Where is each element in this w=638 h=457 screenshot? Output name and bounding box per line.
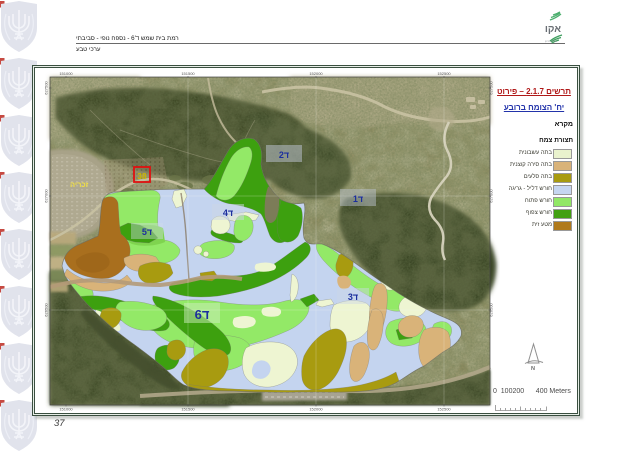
- svg-text:152000: 152000: [309, 71, 323, 76]
- svg-text:151000: 151000: [59, 407, 73, 412]
- svg-text:2ד: 2ד: [279, 150, 289, 160]
- svg-text:4ד: 4ד: [223, 208, 233, 218]
- svg-text:626500: 626500: [44, 303, 49, 317]
- svg-text:626500: 626500: [489, 303, 494, 317]
- svg-text:5ד: 5ד: [142, 227, 152, 237]
- svg-text:151000: 151000: [59, 71, 73, 76]
- svg-text:1ד: 1ד: [353, 194, 363, 204]
- svg-text:38: 38: [137, 171, 147, 181]
- svg-text:N: N: [531, 366, 535, 372]
- svg-text:3ד: 3ד: [348, 292, 358, 302]
- svg-text:627500: 627500: [44, 81, 49, 95]
- svg-text:6ד: 6ד: [195, 307, 210, 322]
- svg-text:151500: 151500: [181, 407, 195, 412]
- svg-text:152000: 152000: [309, 407, 323, 412]
- svg-text:151500: 151500: [181, 71, 195, 76]
- svg-text:זכריה: זכריה: [70, 180, 89, 189]
- svg-text:627000: 627000: [44, 189, 49, 203]
- svg-text:152500: 152500: [437, 407, 451, 412]
- svg-text:סביבה ותכנון: סביבה ותכנון: [545, 41, 557, 43]
- svg-text:152500: 152500: [437, 71, 451, 76]
- svg-text:אקו: אקו: [545, 24, 561, 35]
